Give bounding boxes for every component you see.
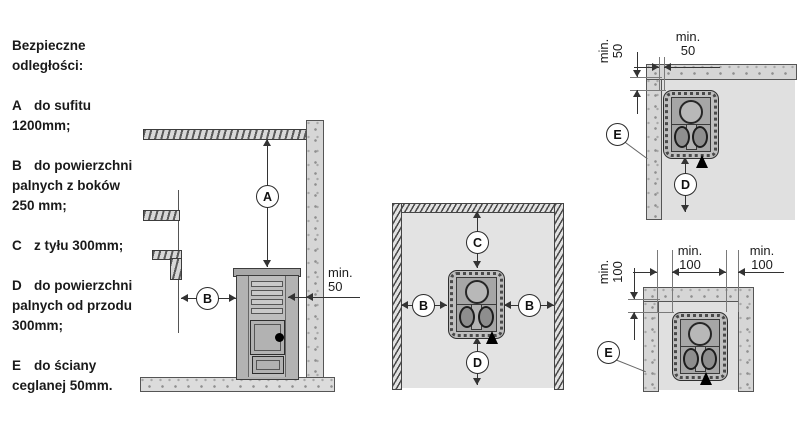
bench-lower-leg	[170, 258, 182, 280]
extension-line	[659, 57, 660, 90]
stove-vent-slat	[251, 308, 283, 314]
brick-wall-right	[738, 287, 754, 392]
burner-left	[459, 306, 475, 328]
callout-e-leader	[624, 141, 648, 159]
callout-e-leader	[615, 359, 646, 372]
arrowhead-down	[473, 261, 481, 268]
arrowhead-up	[263, 139, 271, 146]
stove-door-knob	[275, 333, 284, 342]
stove-top-view	[448, 270, 505, 339]
burner-right	[478, 306, 494, 328]
extension-line	[726, 250, 727, 312]
dimension-line	[664, 67, 720, 68]
legend: Bezpieczne odległości: Ado sufitu 1200mm…	[12, 36, 142, 416]
right-wall	[554, 203, 564, 390]
safety-distances-diagram: Bezpieczne odległości: Ado sufitu 1200mm…	[0, 0, 800, 442]
callout-d: D	[674, 173, 697, 196]
arrowhead-down	[633, 70, 641, 77]
arrowhead-left	[306, 293, 313, 301]
min-50-label-side: min. 50	[597, 31, 625, 71]
burner-right	[692, 126, 708, 148]
stove-vent-slat	[251, 299, 283, 305]
burner-left	[683, 348, 699, 370]
min-100-label-side: min. 100	[597, 250, 625, 294]
stove-panel	[456, 277, 497, 332]
arrowhead-right	[719, 268, 726, 276]
door-marker	[696, 155, 708, 168]
arrowhead-left	[504, 301, 511, 309]
min-50-label: min. 50	[328, 266, 353, 294]
min-100-label-left: min. 100	[672, 244, 708, 272]
callout-d: D	[466, 351, 489, 374]
arrowhead-left	[181, 294, 188, 302]
legend-item-d: Ddo powierzchni palnych od przodu 300mm;	[12, 276, 142, 336]
legend-title: Bezpieczne odległości:	[12, 36, 142, 76]
bench-upper	[143, 210, 180, 221]
callout-e: E	[606, 123, 629, 146]
dimension-line-min50	[288, 297, 360, 298]
chimney-outlet	[688, 322, 712, 346]
extension-line	[664, 57, 665, 90]
extension-line	[738, 250, 739, 312]
door-marker	[700, 372, 712, 385]
min-100-label-right: min. 100	[744, 244, 780, 272]
ceiling	[143, 129, 308, 140]
callout-a: A	[256, 185, 279, 208]
callout-e: E	[597, 341, 620, 364]
stove-ash-drawer	[252, 356, 284, 374]
chimney-outlet	[465, 280, 489, 304]
right-wall	[306, 120, 324, 380]
stove-vent-slat	[251, 290, 283, 296]
stove-top-view	[672, 312, 728, 381]
legend-item-a: Ado sufitu 1200mm;	[12, 96, 142, 136]
arrowhead-right	[440, 301, 447, 309]
arrowhead-left	[288, 293, 295, 301]
legend-item-e: Edo ściany ceglanej 50mm.	[12, 356, 142, 396]
door-marker	[486, 331, 498, 344]
arrowhead-right	[547, 301, 554, 309]
arrowhead-left	[664, 63, 671, 71]
callout-c: C	[466, 231, 489, 254]
legend-item-b: Bdo powierzchni palnych z boków 250 mm;	[12, 156, 142, 216]
arrowhead-up	[633, 90, 641, 97]
arrowhead-down	[630, 292, 638, 299]
burner-right	[701, 348, 717, 370]
left-wall	[392, 203, 402, 390]
arrowhead-down	[681, 205, 689, 212]
arrowhead-right	[229, 294, 236, 302]
extension-line	[630, 77, 662, 78]
arrowhead-down	[473, 378, 481, 385]
arrowhead-left	[401, 301, 408, 309]
stove-panel	[671, 97, 711, 152]
arrowhead-right	[650, 268, 657, 276]
stove-drawer-frame	[256, 360, 280, 370]
callout-b: B	[196, 287, 219, 310]
callout-b-left: B	[412, 294, 435, 317]
min-50-label-top: min. 50	[668, 30, 708, 58]
arrowhead-up	[473, 211, 481, 218]
stove-vent-slat	[251, 281, 283, 287]
burner-left	[674, 126, 690, 148]
arrowhead-right	[652, 63, 659, 71]
stove-door	[250, 320, 285, 355]
arrowhead-up	[630, 312, 638, 319]
legend-item-c: Cz tyłu 300mm;	[12, 236, 142, 256]
stove-top-view	[663, 90, 719, 159]
extension-line	[657, 250, 658, 312]
extension-line	[628, 299, 660, 300]
callout-b-right: B	[518, 294, 541, 317]
chimney-outlet	[679, 100, 703, 124]
arrowhead-down	[263, 260, 271, 267]
stove-panel	[680, 319, 720, 374]
